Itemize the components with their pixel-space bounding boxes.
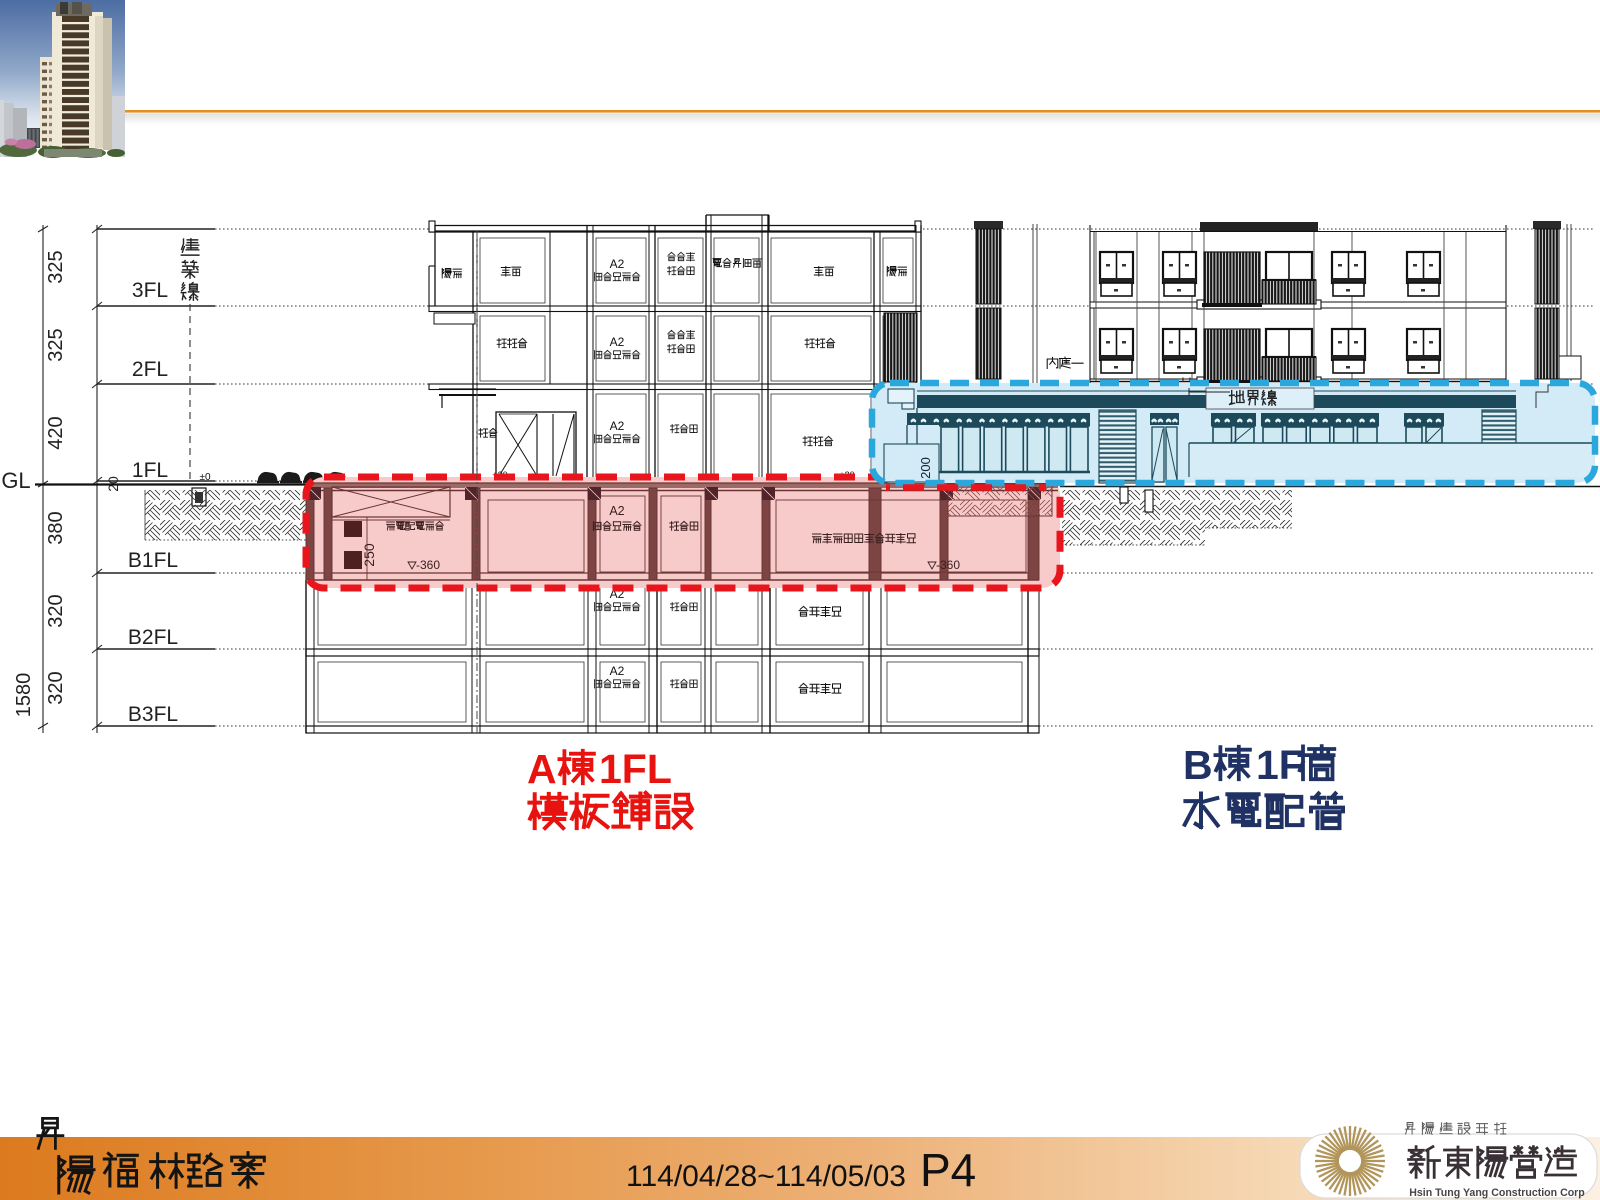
svg-text:A2: A2	[610, 335, 625, 349]
svg-text:-360: -360	[416, 558, 440, 572]
svg-text:1FL: 1FL	[599, 746, 672, 792]
svg-text:B1FL: B1FL	[128, 549, 178, 572]
svg-text:-360: -360	[936, 558, 960, 572]
svg-text:±0: ±0	[199, 472, 210, 483]
svg-text:1FL: 1FL	[132, 459, 168, 482]
svg-text:380: 380	[45, 511, 67, 544]
svg-text:114/04/28~114/05/03: 114/04/28~114/05/03	[626, 1160, 906, 1193]
svg-text:A2: A2	[609, 504, 624, 518]
svg-text:A: A	[527, 746, 557, 792]
svg-text:A2: A2	[610, 419, 625, 433]
svg-text:420: 420	[45, 416, 67, 449]
svg-text:325: 325	[45, 250, 67, 283]
svg-text:320: 320	[45, 671, 67, 704]
svg-text:B: B	[1183, 742, 1213, 788]
svg-text:320: 320	[45, 594, 67, 627]
svg-text:200: 200	[918, 457, 933, 479]
svg-text:A2: A2	[610, 257, 625, 271]
svg-text:1F: 1F	[1256, 742, 1304, 788]
svg-text:250: 250	[361, 543, 377, 567]
svg-text:GL: GL	[1, 468, 30, 493]
svg-text:B3FL: B3FL	[128, 703, 178, 726]
svg-text:3FL: 3FL	[132, 279, 168, 302]
svg-text:B2FL: B2FL	[128, 626, 178, 649]
svg-text:P4: P4	[920, 1144, 976, 1196]
svg-text:A2: A2	[610, 664, 625, 678]
svg-text:1580: 1580	[13, 673, 35, 718]
svg-text:2FL: 2FL	[132, 358, 168, 381]
svg-text:325: 325	[45, 328, 67, 361]
svg-text:Hsin Tung Yang Construction Co: Hsin Tung Yang Construction Corp	[1409, 1187, 1585, 1199]
